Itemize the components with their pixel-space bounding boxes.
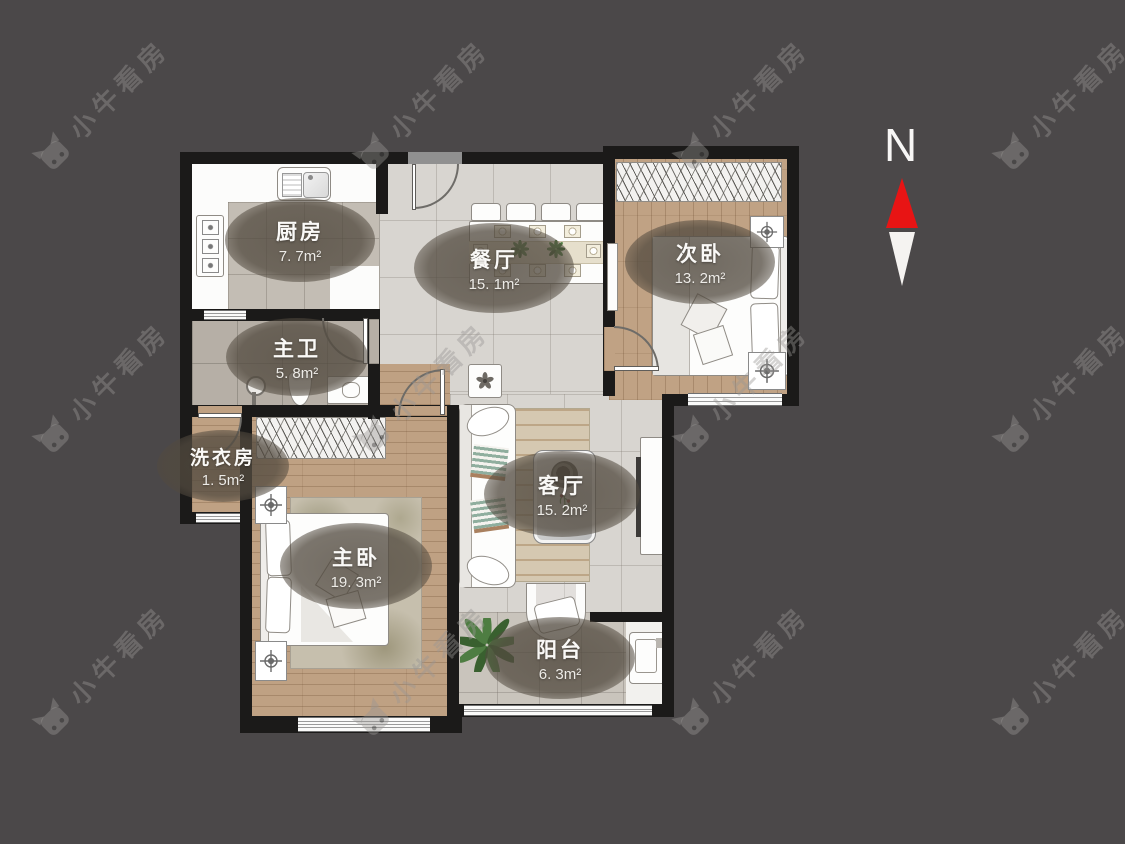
sink-drainboard: [282, 173, 302, 197]
floorplan-image: { "watermark": { "text": "小牛看房" }, "comp…: [0, 0, 1125, 844]
niu-logo-icon: [28, 411, 79, 462]
watermark: 小牛看房: [27, 30, 176, 179]
room-name: 餐厅: [470, 244, 518, 274]
room-area: 7. 7m²: [279, 248, 322, 265]
room-label-laundry: 洗衣房 1. 5m²: [157, 430, 289, 502]
dining-chair: [471, 203, 501, 221]
room-area: 6. 3m²: [539, 666, 582, 683]
niu-logo-icon: [988, 128, 1039, 179]
room-area: 15. 1m²: [469, 276, 520, 293]
window: [464, 705, 652, 716]
room-area: 5. 8m²: [276, 365, 319, 382]
master-bedroom-door-leaf: [440, 369, 445, 415]
room-name: 客厅: [538, 470, 586, 500]
bath-door-threshold: [369, 319, 379, 364]
laundry-door-leaf: [198, 413, 242, 418]
burner: [202, 258, 219, 273]
second-bedroom-wardrobe: [616, 162, 782, 202]
compass-north-label: N: [884, 118, 917, 172]
place-setting: [586, 244, 601, 258]
wall: [180, 152, 614, 164]
niu-logo-icon: [28, 128, 79, 179]
wall: [662, 394, 674, 716]
kitchen-hall-divider-line: [379, 214, 380, 310]
watermark: 小牛看房: [987, 596, 1125, 745]
room-name: 主卫: [273, 333, 321, 363]
washer-door: [635, 639, 657, 673]
room-label-second-bedroom: 次卧 13. 2m²: [625, 220, 775, 304]
compass-arrow-icon: [885, 176, 919, 290]
hall-decor-frame: [468, 364, 502, 398]
room-name: 次卧: [676, 238, 724, 268]
room-area: 13. 2m²: [675, 270, 726, 287]
watermark: 小牛看房: [27, 313, 176, 462]
niu-logo-icon: [988, 411, 1039, 462]
burner: [202, 220, 219, 235]
room-name: 洗衣房: [190, 443, 256, 470]
room-name: 厨房: [276, 216, 324, 246]
wall: [447, 405, 459, 716]
niu-logo-icon: [668, 411, 719, 462]
kitchen-stove: [196, 215, 224, 277]
watermark: 小牛看房: [987, 313, 1125, 462]
wall: [376, 152, 388, 214]
dining-chair: [541, 203, 571, 221]
window: [196, 513, 240, 523]
window: [688, 393, 782, 406]
second-bedroom-door-leaf: [614, 366, 659, 371]
room-label-master-bedroom: 主卧 19. 3m²: [280, 523, 432, 609]
room-label-master-bath: 主卫 5. 8m²: [226, 318, 368, 396]
sink-faucet: [308, 175, 313, 180]
niu-logo-icon: [28, 694, 79, 745]
window: [204, 310, 246, 320]
room-area: 15. 2m²: [537, 502, 588, 519]
wall: [603, 146, 799, 159]
wall: [787, 146, 799, 406]
burner: [202, 239, 219, 254]
bed-pillow: [750, 303, 780, 360]
entrance-door-leaf: [412, 164, 416, 210]
floor-drain-symbol: [748, 352, 786, 390]
watermark: 小牛看房: [667, 596, 816, 745]
room-name: 主卧: [332, 542, 380, 572]
window: [298, 717, 430, 732]
sink-basin: [303, 172, 329, 198]
room-label-kitchen: 厨房 7. 7m²: [225, 198, 375, 282]
room-label-balcony: 阳台 6. 3m²: [485, 617, 635, 699]
watermark: 小牛看房: [27, 596, 176, 745]
kitchen-sink: [277, 167, 331, 201]
dining-chair: [576, 203, 606, 221]
room-area: 19. 3m²: [331, 574, 382, 591]
watermark: 小牛看房: [987, 30, 1125, 179]
floor-drain-symbol: [255, 641, 287, 681]
wall: [590, 612, 674, 622]
room-name: 阳台: [536, 634, 584, 664]
niu-logo-icon: [988, 694, 1039, 745]
second-bedroom-door-panel: [607, 243, 618, 311]
dining-chair: [506, 203, 536, 221]
room-area: 1. 5m²: [202, 472, 245, 489]
room-label-dining: 餐厅 15. 1m²: [414, 223, 574, 313]
niu-logo-icon: [668, 694, 719, 745]
tv-cabinet: [640, 437, 664, 555]
room-label-living: 客厅 15. 2m²: [484, 451, 640, 537]
entrance-lintel: [408, 152, 462, 164]
place-setting: [564, 225, 581, 238]
